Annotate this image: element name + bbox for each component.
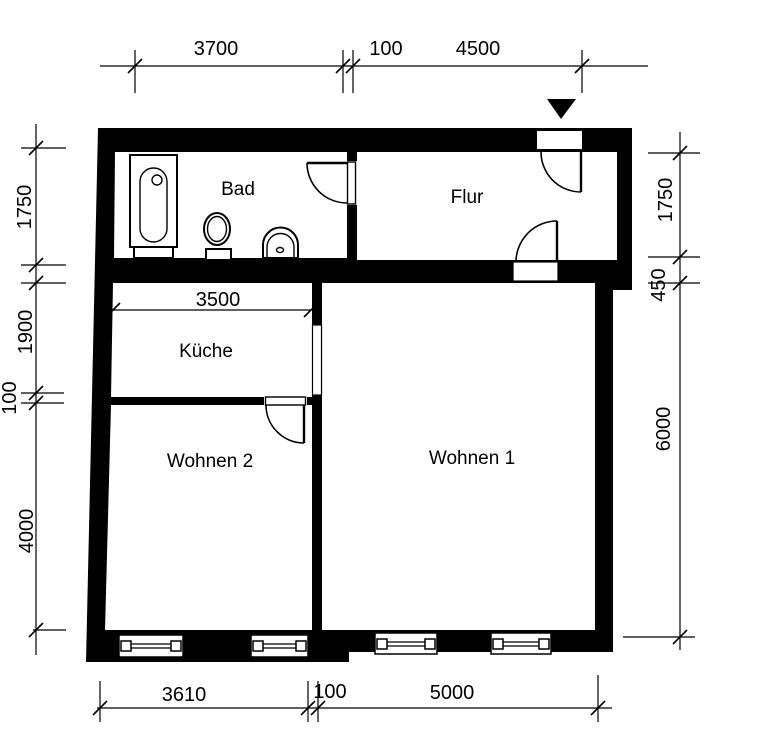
room-label-kueche: Küche xyxy=(179,341,233,362)
dim-bottom-100: 100 xyxy=(313,681,346,703)
dim-top-100: 100 xyxy=(369,38,402,60)
dim-kitchen-3500: 3500 xyxy=(196,289,241,311)
floorplan-canvas: 3700 100 4500 3610 100 5000 1750 1900 xyxy=(0,0,772,742)
window-icon-1 xyxy=(119,635,183,657)
toilet-base xyxy=(206,249,231,260)
entrance-opening xyxy=(537,131,582,149)
dim-right-1750: 1750 xyxy=(655,178,677,223)
dim-bottom-3610: 3610 xyxy=(162,684,207,706)
bathtub-icon xyxy=(130,155,177,247)
dim-right-450: 450 xyxy=(648,268,670,301)
dim-left-1900: 1900 xyxy=(15,310,37,355)
window-icon-2 xyxy=(251,635,308,657)
room-label-wohnen2: Wohnen 2 xyxy=(167,451,253,472)
dim-left-100: 100 xyxy=(0,381,21,414)
room-label-bad: Bad xyxy=(221,179,255,200)
dim-bottom-5000: 5000 xyxy=(430,682,475,704)
room-label-wohnen1: Wohnen 1 xyxy=(429,448,515,469)
floorplan-page: 3700 100 4500 3610 100 5000 1750 1900 xyxy=(0,0,772,742)
dim-right-6000: 6000 xyxy=(653,407,675,452)
room-label-flur: Flur xyxy=(451,187,484,208)
window-icon-3 xyxy=(375,633,437,654)
dim-top-3700: 3700 xyxy=(194,38,239,60)
dim-left-4000: 4000 xyxy=(16,509,38,554)
dim-top-4500: 4500 xyxy=(456,38,501,60)
dim-left-1750: 1750 xyxy=(14,185,36,230)
kueche-wohnen1-passage xyxy=(313,325,322,395)
bathtub-base xyxy=(134,247,173,258)
window-icon-4 xyxy=(491,633,551,654)
kueche-door-frame xyxy=(266,397,306,405)
bad-door-frame xyxy=(348,162,356,204)
flur-wohnen1-opening xyxy=(513,262,558,281)
room-wohnen2-floor xyxy=(105,405,312,630)
room-flur-floor xyxy=(357,152,617,260)
